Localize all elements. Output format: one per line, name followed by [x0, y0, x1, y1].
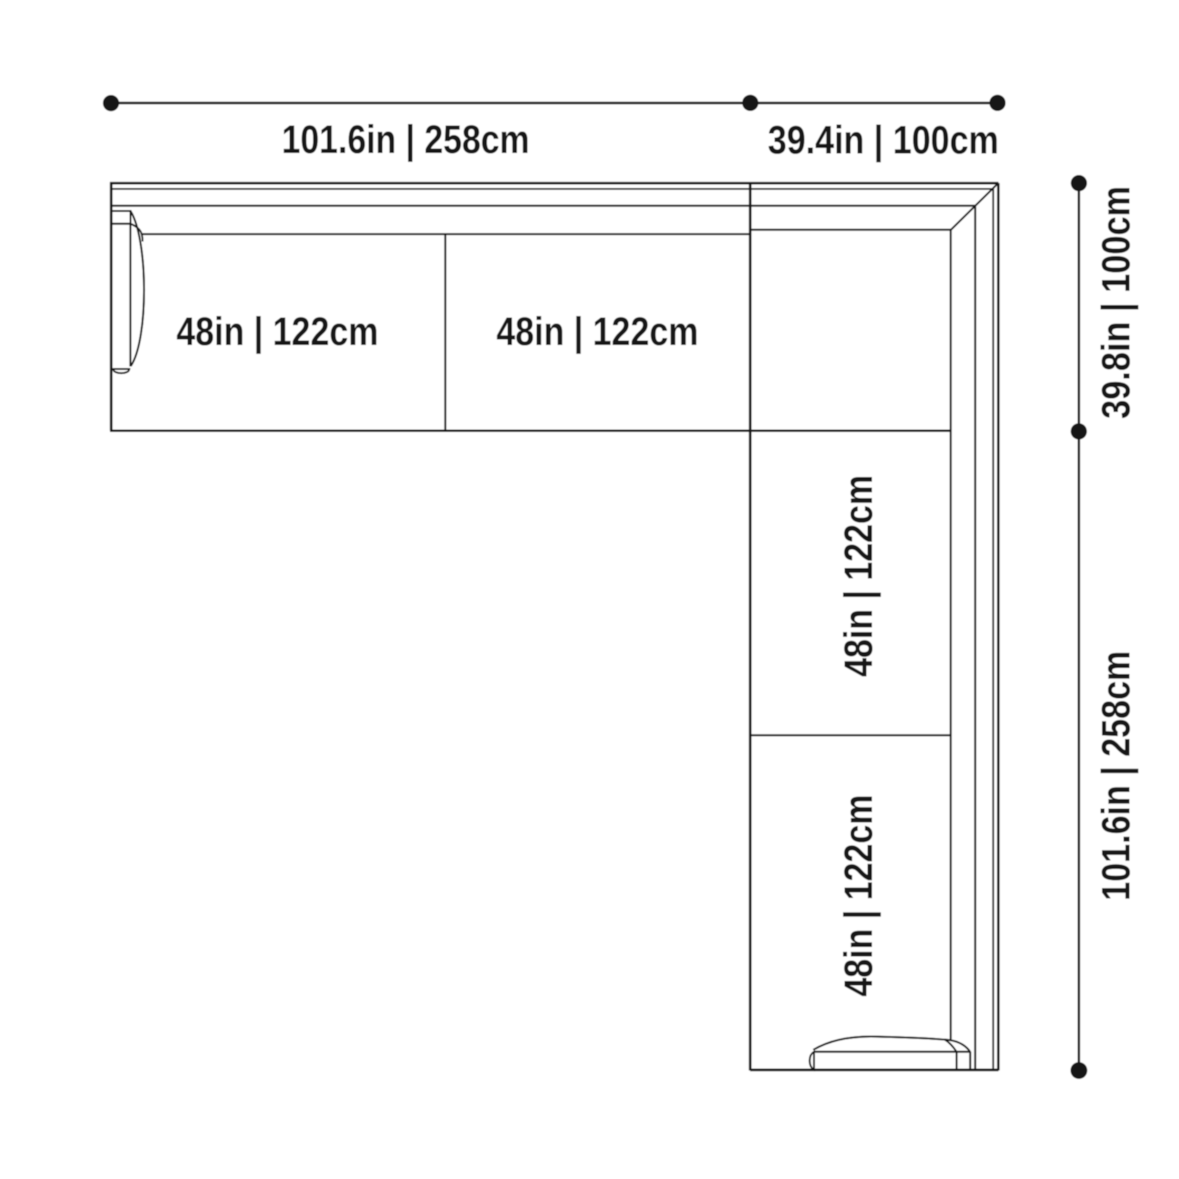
svg-text:48in | 122cm: 48in | 122cm [837, 795, 881, 997]
svg-text:48in | 122cm: 48in | 122cm [176, 310, 378, 354]
svg-text:39.4in | 100cm: 39.4in | 100cm [768, 118, 999, 162]
svg-text:101.6in | 258cm: 101.6in | 258cm [1094, 651, 1138, 901]
svg-text:39.8in | 100cm: 39.8in | 100cm [1094, 186, 1138, 419]
svg-text:48in | 122cm: 48in | 122cm [837, 475, 881, 677]
svg-text:48in | 122cm: 48in | 122cm [496, 310, 698, 354]
svg-text:101.6in | 258cm: 101.6in | 258cm [282, 118, 530, 162]
